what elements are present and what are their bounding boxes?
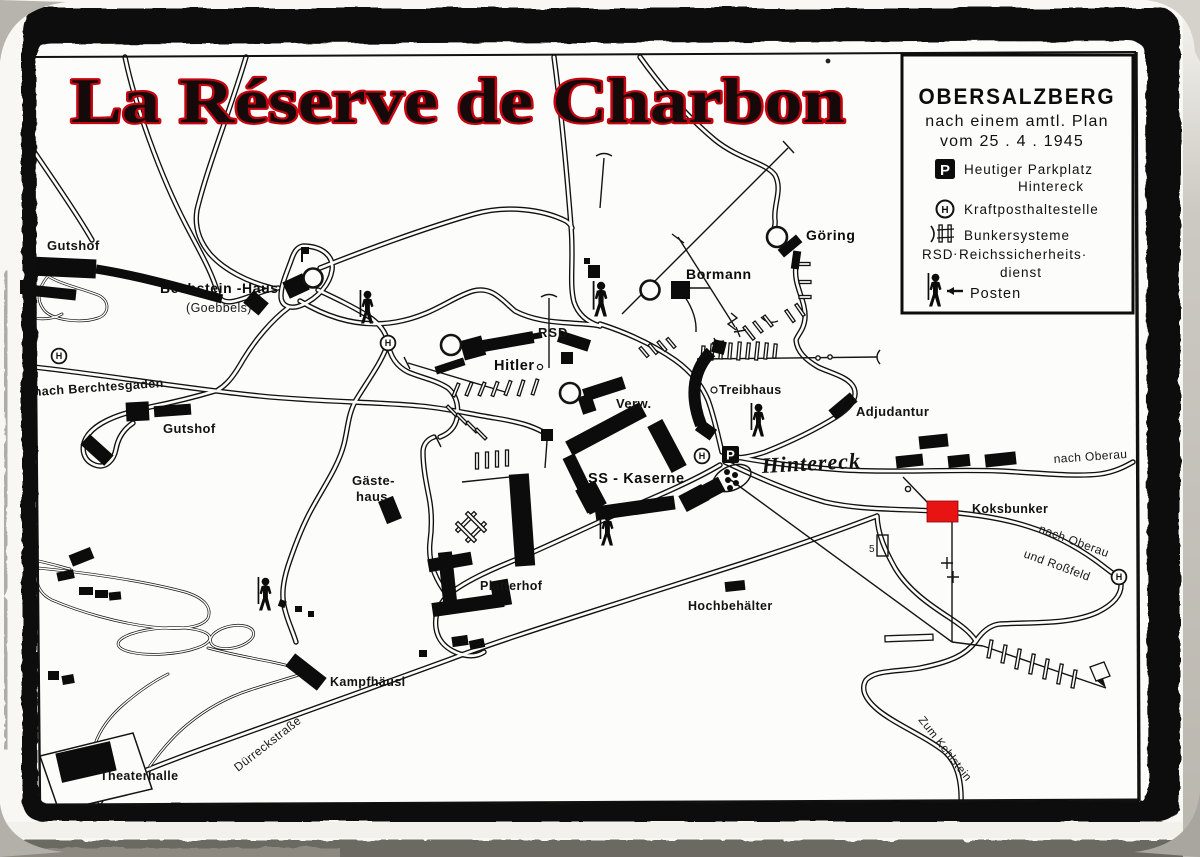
svg-text:5: 5 <box>869 544 875 555</box>
svg-text:Posten: Posten <box>970 286 1021 302</box>
svg-text:Verw.: Verw. <box>616 396 651 411</box>
svg-text:Gäste-: Gäste- <box>352 473 395 488</box>
svg-text:·: · <box>953 246 959 261</box>
svg-text:RSD: RSD <box>922 247 954 262</box>
svg-text:Koksbunker: Koksbunker <box>972 502 1048 516</box>
svg-text:Gutshof: Gutshof <box>47 238 100 253</box>
svg-text:(Goebbels): (Goebbels) <box>186 301 252 315</box>
svg-text:Hitler: Hitler <box>494 358 535 374</box>
svg-text:Bechstein -Haus: Bechstein -Haus <box>160 280 279 296</box>
svg-text:P: P <box>726 448 735 463</box>
svg-text:Adjudantur: Adjudantur <box>856 404 929 419</box>
svg-text:nach einem amtl. Plan: nach einem amtl. Plan <box>925 113 1109 130</box>
svg-text:Platterhof: Platterhof <box>480 579 543 593</box>
svg-text:RSD.: RSD. <box>538 325 573 340</box>
svg-text:Kraftposthaltestelle: Kraftposthaltestelle <box>964 202 1099 217</box>
svg-text:Reichssicherheits·: Reichssicherheits· <box>959 247 1087 262</box>
svg-text:Theaterhalle: Theaterhalle <box>100 769 178 783</box>
svg-text:Bunkersysteme: Bunkersysteme <box>964 228 1070 243</box>
svg-text:P: P <box>940 162 950 179</box>
svg-text:SS - Kaserne: SS - Kaserne <box>588 471 685 487</box>
svg-text:Hochbehälter: Hochbehälter <box>688 599 773 613</box>
svg-text:Gutshof: Gutshof <box>163 421 216 436</box>
svg-text:Heutiger Parkplatz: Heutiger Parkplatz <box>964 162 1093 177</box>
svg-text:Bormann: Bormann <box>686 266 752 282</box>
svg-text:Göring: Göring <box>806 227 855 243</box>
svg-text:dienst: dienst <box>1000 265 1042 280</box>
svg-text:OBERSALZBERG: OBERSALZBERG <box>919 84 1116 109</box>
svg-text:La Réserve de Charbon: La Réserve de Charbon <box>71 65 845 136</box>
svg-text:Hintereck: Hintereck <box>1018 179 1084 194</box>
svg-text:Hintereck: Hintereck <box>760 448 862 478</box>
svg-text:Treibhaus: Treibhaus <box>719 383 782 397</box>
svg-text:vom 25 . 4 . 1945: vom 25 . 4 . 1945 <box>940 133 1084 150</box>
svg-text:H: H <box>941 205 948 216</box>
svg-text:haus: haus <box>356 489 388 504</box>
svg-text:Kampfhäusl: Kampfhäusl <box>330 675 406 689</box>
